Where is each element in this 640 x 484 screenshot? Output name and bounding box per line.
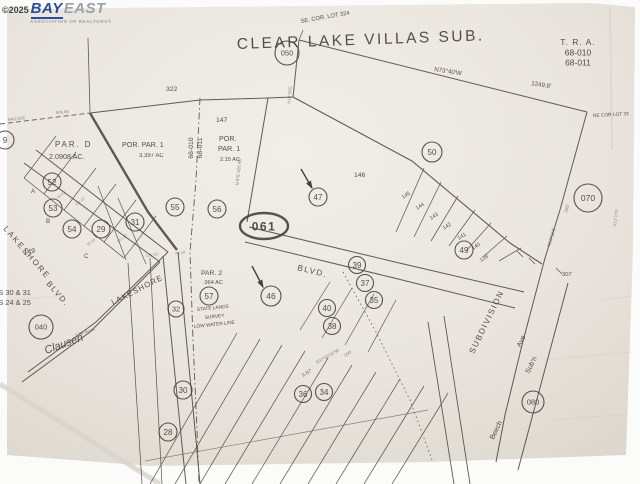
map-label-por: POR. [219, 134, 237, 143]
lot-number: 57 [205, 292, 214, 301]
lot-number: 30 [179, 386, 188, 395]
map-label-2-0908-ac: 2.0908 AC. [49, 152, 85, 161]
bayeast-logo-bay: BAY [31, 1, 63, 19]
lot-number: 56 [213, 205, 222, 214]
lot-number: 55 [171, 203, 180, 212]
plat-map-photo: CLEAR LAKE VILLAS SUB.SE. COR. LOT 324N7… [0, 0, 640, 484]
bayeast-watermark: ©2025 BAY EAST ASSOCIATION OF REALTORS® [2, 1, 112, 25]
edge-note-lots-30-31: LOTS 30 & 31 [0, 288, 31, 297]
lot-number: 28 [164, 428, 173, 437]
copyright-year: ©2025 [2, 6, 29, 15]
lot-number: 050 [281, 49, 294, 58]
lot-number: 9 [3, 136, 8, 145]
bayeast-logo-tagline: ASSOCIATION OF REALTORS® [30, 20, 112, 25]
lot-number: 32 [172, 305, 180, 314]
map-label-c: C [84, 253, 89, 260]
tra-code-2: 68-011 [565, 58, 591, 68]
map-label-68-010: 68-010 [188, 137, 195, 158]
lot-number: 35 [370, 296, 379, 305]
map-label-par-1: PAR. 1 [218, 144, 240, 153]
lot-number: 47 [314, 193, 323, 202]
map-label-por-par-1: POR. PAR. 1 [122, 140, 164, 149]
lot-number: 50 [428, 148, 437, 157]
lot-number: 40 [323, 304, 332, 313]
lot-number: 52 [48, 178, 57, 187]
map-label-3-397-ac: 3.397 AC [139, 153, 164, 159]
tra-heading: T. R. A. [560, 37, 595, 47]
map-label-par-d: PAR. D [55, 140, 92, 149]
lot-number: 040 [35, 323, 48, 332]
tra-code-1: 68-010 [565, 48, 592, 58]
lot-number: 39 [353, 261, 362, 270]
lot-number: 54 [68, 225, 77, 234]
map-label-68-011: 68-011 [197, 137, 204, 158]
lot-number: 49 [460, 246, 469, 255]
lot-number: 53 [49, 204, 58, 213]
bayeast-logo-east: EAST [64, 1, 106, 16]
lot-number: 34 [320, 388, 329, 397]
lot-number: 080 [527, 398, 540, 407]
map-label-322: 322 [166, 86, 178, 93]
lot-number: 36 [299, 390, 308, 399]
lot-number: 070 [581, 193, 595, 203]
lot-number: 46 [266, 291, 276, 301]
map-label-b: B [46, 218, 50, 225]
map-label-147: 147 [216, 117, 228, 124]
plat-map: CLEAR LAKE VILLAS SUB.SE. COR. LOT 324N7… [0, 0, 640, 484]
lot-number: 37 [361, 279, 370, 288]
lot-number: 29 [97, 225, 106, 234]
lot-number: 061 [252, 219, 277, 233]
lot-number: 38 [328, 322, 337, 331]
edge-note-lots-24-25: LOTS 24 & 25 [0, 298, 31, 307]
map-label-307: 307 [562, 272, 572, 278]
lot-number: 31 [131, 218, 140, 227]
map-label-par-2: PAR. 2 [201, 270, 222, 277]
map-label-146: 146 [354, 172, 366, 179]
map-label-964-ac: .964 AC [203, 280, 223, 286]
